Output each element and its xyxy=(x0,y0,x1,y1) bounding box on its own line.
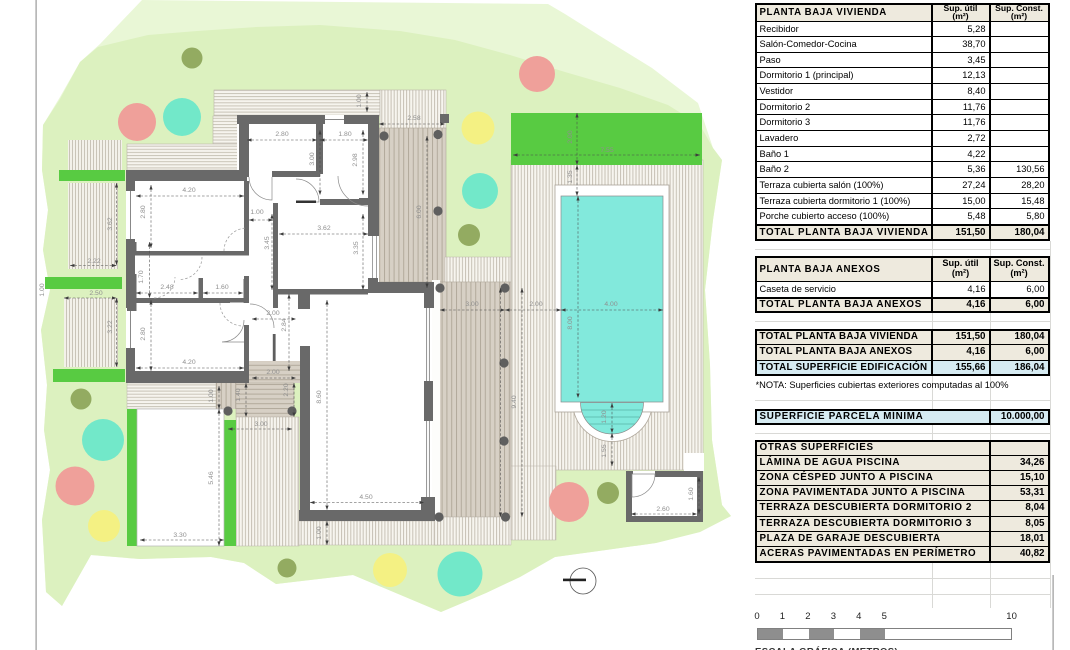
svg-text:2.00: 2.00 xyxy=(529,301,542,308)
svg-text:4.20: 4.20 xyxy=(182,359,195,366)
svg-text:1.70: 1.70 xyxy=(138,270,145,283)
svg-text:4.20: 4.20 xyxy=(182,187,195,194)
svg-text:2.50: 2.50 xyxy=(89,290,102,297)
svg-text:2.48: 2.48 xyxy=(160,284,173,291)
svg-text:2.60: 2.60 xyxy=(656,506,669,513)
svg-text:2.22: 2.22 xyxy=(87,258,100,265)
svg-text:3.00: 3.00 xyxy=(254,421,267,428)
svg-text:6.00: 6.00 xyxy=(416,205,423,218)
svg-text:4.50: 4.50 xyxy=(359,494,372,501)
svg-text:3.62: 3.62 xyxy=(107,217,114,230)
svg-text:3.30: 3.30 xyxy=(173,532,186,539)
svg-text:3.62: 3.62 xyxy=(317,225,330,232)
svg-text:3.35: 3.35 xyxy=(353,241,360,254)
svg-text:2.58: 2.58 xyxy=(407,115,420,122)
svg-text:1.00: 1.00 xyxy=(250,209,263,216)
svg-text:1.35: 1.35 xyxy=(567,170,574,183)
svg-text:ESCALA GRÁFICA (METROS): ESCALA GRÁFICA (METROS) xyxy=(755,647,898,650)
svg-text:3.00: 3.00 xyxy=(309,152,316,165)
svg-text:8.60: 8.60 xyxy=(316,390,323,403)
svg-text:2.80: 2.80 xyxy=(140,205,147,218)
svg-text:1.60: 1.60 xyxy=(688,487,695,500)
svg-text:2.80: 2.80 xyxy=(140,327,147,340)
svg-text:1.80: 1.80 xyxy=(338,131,351,138)
svg-text:1.00: 1.00 xyxy=(316,526,323,539)
svg-text:2.98: 2.98 xyxy=(352,153,359,166)
svg-text:2.00: 2.00 xyxy=(266,369,279,376)
svg-text:3.00: 3.00 xyxy=(465,301,478,308)
svg-text:2.00: 2.00 xyxy=(266,310,279,317)
svg-text:1.20: 1.20 xyxy=(601,410,608,423)
svg-text:1.60: 1.60 xyxy=(215,284,228,291)
svg-text:2.80: 2.80 xyxy=(275,131,288,138)
svg-text:1.00: 1.00 xyxy=(208,389,215,402)
svg-text:8.00: 8.00 xyxy=(567,316,574,329)
svg-text:2.20: 2.20 xyxy=(283,383,290,396)
svg-text:1.00: 1.00 xyxy=(39,283,46,296)
svg-text:2.84: 2.84 xyxy=(281,318,288,331)
svg-text:5.46: 5.46 xyxy=(208,471,215,484)
svg-text:3.22: 3.22 xyxy=(107,320,114,333)
svg-text:1.55: 1.55 xyxy=(601,444,608,457)
svg-text:1.40: 1.40 xyxy=(235,388,242,401)
svg-text:7.55: 7.55 xyxy=(600,147,613,154)
svg-text:4.00: 4.00 xyxy=(604,301,617,308)
svg-text:1.00: 1.00 xyxy=(356,94,363,107)
svg-text:9.40: 9.40 xyxy=(511,395,518,408)
svg-text:3.45: 3.45 xyxy=(264,236,271,249)
svg-text:2.00: 2.00 xyxy=(567,130,574,143)
